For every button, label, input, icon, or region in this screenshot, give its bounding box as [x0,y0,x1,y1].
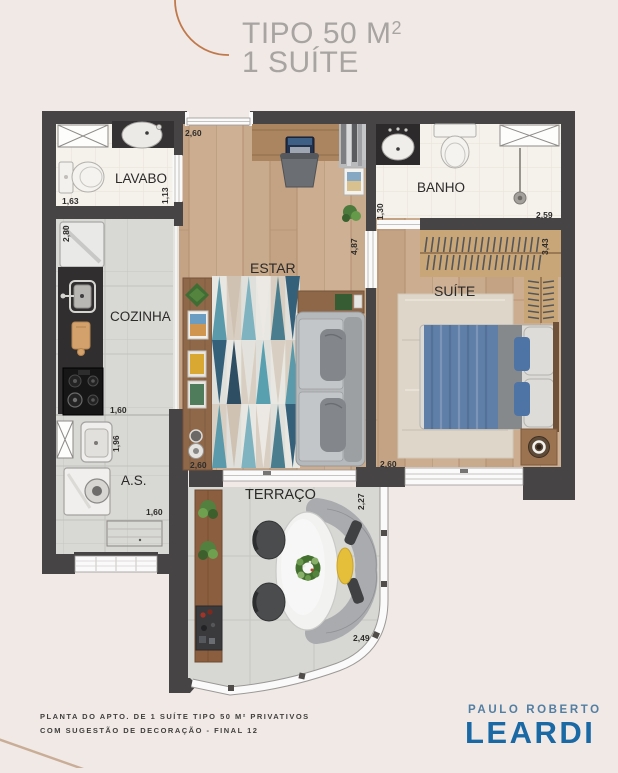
svg-text:2,80: 2,80 [61,225,71,242]
svg-text:TERRAÇO: TERRAÇO [245,487,316,503]
svg-text:A.S.: A.S. [121,473,147,488]
svg-text:2,49: 2,49 [353,633,370,643]
svg-text:2,59: 2,59 [536,210,553,220]
svg-text:1,30: 1,30 [375,203,385,220]
svg-text:1,60: 1,60 [110,405,127,415]
svg-text:BANHO: BANHO [417,180,465,195]
svg-text:2,60: 2,60 [380,459,397,469]
svg-text:1 SUÍTE: 1 SUÍTE [242,46,359,79]
svg-text:2,27: 2,27 [356,493,366,510]
svg-text:1,60: 1,60 [146,507,163,517]
svg-text:COZINHA: COZINHA [110,309,171,324]
svg-text:PLANTA DO APTO. DE 1 SUÍTE TIP: PLANTA DO APTO. DE 1 SUÍTE TIPO 50 M² PR… [40,712,310,721]
svg-text:3,43: 3,43 [540,238,550,255]
svg-text:1,63: 1,63 [62,196,79,206]
svg-text:2,60: 2,60 [190,460,207,470]
svg-text:1,96: 1,96 [111,435,121,452]
svg-text:2,60: 2,60 [185,128,202,138]
svg-text:ESTAR: ESTAR [250,260,296,276]
svg-text:4,87: 4,87 [349,238,359,255]
svg-text:SUÍTE: SUÍTE [434,283,475,299]
svg-text:LAVABO: LAVABO [115,171,167,186]
svg-text:1,13: 1,13 [160,187,170,204]
svg-text:COM SUGESTÃO DE DECORAÇÃO - FI: COM SUGESTÃO DE DECORAÇÃO - FINAL 12 [40,726,258,735]
svg-text:LEARDI: LEARDI [465,715,595,750]
